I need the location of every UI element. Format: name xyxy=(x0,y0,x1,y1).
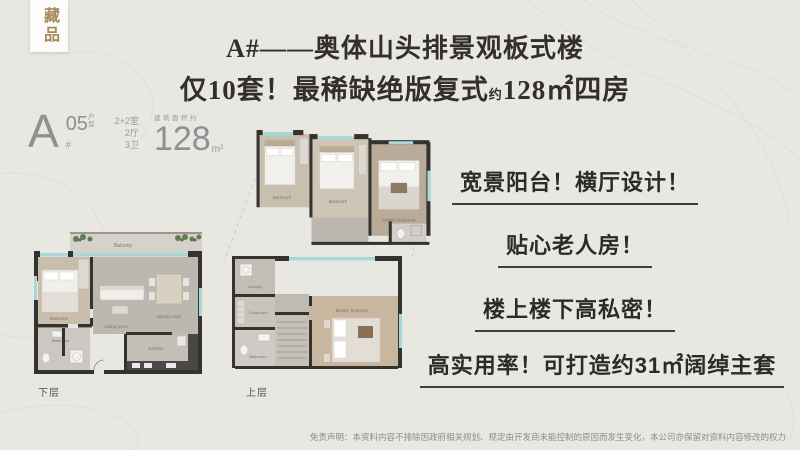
svg-text:Bedroom: Bedroom xyxy=(50,316,69,321)
svg-text:Bathroom: Bathroom xyxy=(249,354,267,359)
unit-area-value: 128 xyxy=(154,122,211,156)
unit-layout-halls: 2厅 xyxy=(109,127,139,139)
headline-line1: A#——奥体山头排景观板式楼 xyxy=(150,28,660,65)
unit-number: 05 xyxy=(66,113,88,135)
lower-floor-plan: Balcony Bedroom Living room Dining room xyxy=(28,230,208,378)
unit-info: A 05户型 # 2+2室 2厅 3卫 建筑面积约 128 m² xyxy=(28,110,223,156)
svg-text:Cloakroom: Cloakroom xyxy=(248,310,268,315)
svg-text:Bedroom: Bedroom xyxy=(329,199,348,204)
promo-slide: 藏品 A#——奥体山头排景观板式楼 仅10套！最稀缺绝版复式约128㎡四房 A … xyxy=(0,0,800,450)
svg-text:Dining room: Dining room xyxy=(157,314,182,319)
selling-point-efficiency: 高实用率！可打造约31㎡阔绰主套 xyxy=(413,348,791,388)
selling-point-elder-room: 贴心老人房！ xyxy=(435,228,715,268)
unit-area-unit: m² xyxy=(212,144,224,155)
selling-point-efficiency-text: 高实用率！可打造约31㎡阔绰主套 xyxy=(420,348,784,388)
unit-layout-baths: 3卫 xyxy=(109,139,139,151)
upper-floor-label: 上层 xyxy=(246,384,268,399)
disclaimer-text: 免责声明：本资料内容不排除因政府相关规划、规定由开发商未能控制的原因而发生变化，… xyxy=(310,431,786,443)
selling-point-elder-room-text: 贴心老人房！ xyxy=(498,228,652,268)
headline: A#——奥体山头排景观板式楼 仅10套！最稀缺绝版复式约128㎡四房 xyxy=(150,28,660,107)
seal-text: 藏品 xyxy=(37,7,61,45)
headline-line2-pre: 仅10套！最稀缺绝版复式 xyxy=(180,75,489,105)
selling-point-balcony-text: 宽景阳台！横厅设计！ xyxy=(452,165,698,205)
unit-layout-rooms: 2+2室 xyxy=(109,115,139,127)
bedrooms-floor-plan: Bedroom Bedroom Master bedroom xyxy=(256,130,432,250)
unit-number-group: 05户型 # xyxy=(66,114,96,150)
svg-text:Balcony: Balcony xyxy=(114,243,132,249)
unit-hash: # xyxy=(66,140,96,150)
svg-text:Master bedroom: Master bedroom xyxy=(336,308,369,313)
unit-number-suffix: 户型 xyxy=(88,114,96,129)
svg-text:Bedroom: Bedroom xyxy=(273,195,292,200)
selling-point-privacy: 楼上楼下高私密！ xyxy=(435,292,715,332)
selling-point-privacy-text: 楼上楼下高私密！ xyxy=(475,292,675,332)
headline-line2-post: 128㎡四房 xyxy=(503,75,631,105)
headline-line2-approx: 约 xyxy=(489,87,503,102)
upper-floor-plan: Laundry Cloakroom Bathroom xyxy=(232,256,404,374)
collection-seal: 藏品 xyxy=(30,0,68,52)
lower-floor-label: 下层 xyxy=(38,384,60,399)
svg-text:Living room: Living room xyxy=(104,324,128,329)
svg-text:Laundry: Laundry xyxy=(248,284,262,289)
unit-layout: 2+2室 2厅 3卫 xyxy=(109,115,139,151)
svg-text:Kitchen: Kitchen xyxy=(148,346,164,351)
unit-area: 建筑面积约 128 m² xyxy=(154,112,223,156)
svg-text:Master bedroom: Master bedroom xyxy=(382,218,415,223)
headline-line2: 仅10套！最稀缺绝版复式约128㎡四房 xyxy=(150,68,660,107)
unit-block-letter: A xyxy=(28,110,59,154)
selling-point-balcony: 宽景阳台！横厅设计！ xyxy=(435,165,715,205)
svg-text:Bathroom: Bathroom xyxy=(52,338,70,343)
